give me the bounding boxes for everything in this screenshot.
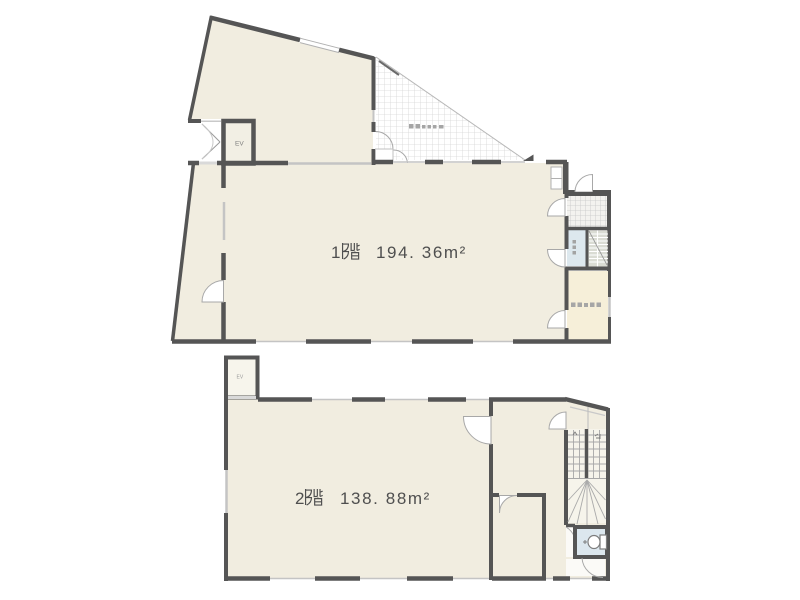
svg-text:138. 88m²: 138. 88m²	[340, 489, 431, 508]
svg-text:194. 36m²: 194. 36m²	[376, 243, 467, 262]
svg-text:EV: EV	[235, 141, 244, 148]
svg-text:EV: EV	[237, 375, 244, 381]
svg-text:2: 2	[295, 489, 304, 508]
svg-text:1: 1	[331, 243, 340, 262]
